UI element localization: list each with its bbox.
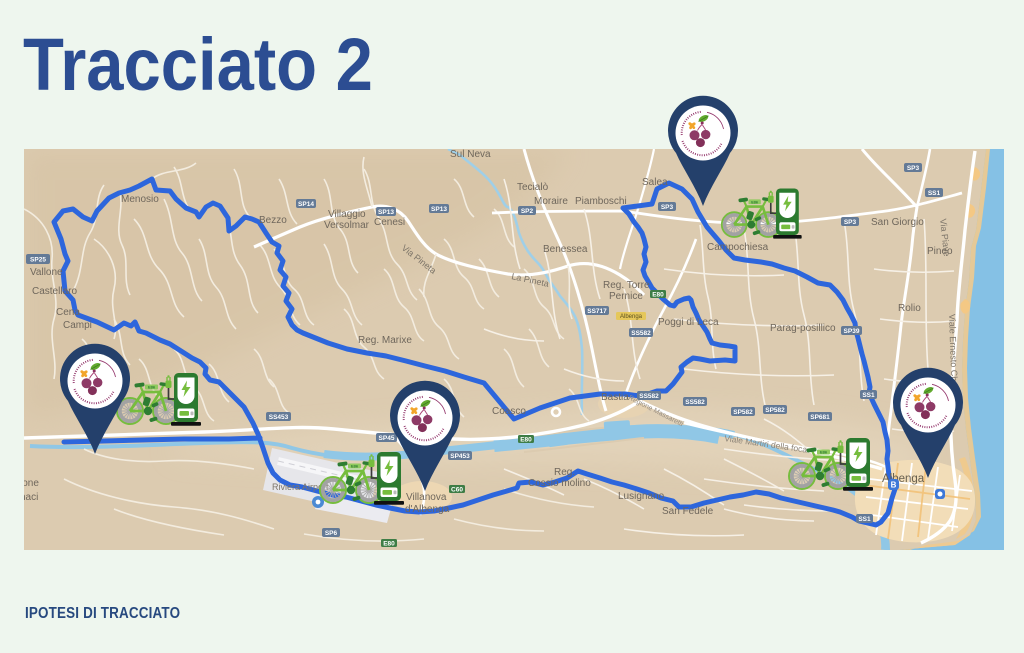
- svg-text:E80: E80: [383, 541, 395, 548]
- svg-text:SP25: SP25: [30, 257, 46, 264]
- svg-text:SS582: SS582: [685, 399, 705, 406]
- svg-text:B: B: [891, 481, 897, 490]
- svg-text:SS582: SS582: [631, 330, 651, 337]
- svg-text:C60: C60: [451, 487, 463, 494]
- svg-text:SP13: SP13: [378, 209, 394, 216]
- svg-text:Sul Neva: Sul Neva: [450, 149, 491, 160]
- svg-text:Castellaro: Castellaro: [32, 286, 77, 297]
- svg-text:SP582: SP582: [765, 407, 785, 414]
- svg-text:Coasco: Coasco: [492, 406, 526, 417]
- svg-text:Pernice: Pernice: [609, 291, 643, 302]
- svg-text:Reg. Marixe: Reg. Marixe: [358, 335, 412, 346]
- svg-text:San Giorgio: San Giorgio: [871, 217, 924, 228]
- svg-text:Benessea: Benessea: [543, 244, 588, 255]
- svg-text:Cossio molino: Cossio molino: [528, 478, 591, 489]
- svg-text:San Fedele: San Fedele: [662, 506, 714, 517]
- svg-text:SS1: SS1: [928, 190, 941, 197]
- svg-text:naci: naci: [20, 492, 38, 503]
- svg-text:Lusignano: Lusignano: [618, 491, 665, 502]
- svg-text:Villanova: Villanova: [406, 492, 447, 503]
- svg-text:SP453: SP453: [450, 453, 470, 460]
- svg-text:Vallone: Vallone: [30, 267, 63, 278]
- svg-text:SP3: SP3: [844, 219, 857, 226]
- svg-text:d'Albenga: d'Albenga: [405, 504, 450, 515]
- svg-text:Reg.: Reg.: [554, 467, 575, 478]
- svg-text:Reg. Torre: Reg. Torre: [603, 280, 650, 291]
- svg-text:E80: E80: [520, 437, 532, 444]
- svg-text:SP2: SP2: [521, 208, 534, 215]
- svg-text:Tecialò: Tecialò: [517, 182, 549, 193]
- svg-text:SP3: SP3: [661, 204, 674, 211]
- svg-text:Bastia: Bastia: [601, 392, 629, 403]
- svg-text:SP3: SP3: [907, 165, 920, 172]
- svg-text:Cena: Cena: [56, 307, 80, 318]
- svg-text:Salea: Salea: [642, 177, 668, 188]
- svg-text:SS1: SS1: [858, 516, 871, 523]
- svg-text:Bezzo: Bezzo: [259, 215, 287, 226]
- svg-text:SP582: SP582: [733, 409, 753, 416]
- svg-text:Villaggio: Villaggio: [328, 209, 366, 220]
- svg-text:SS1: SS1: [862, 392, 875, 399]
- svg-text:E80: E80: [652, 292, 664, 299]
- svg-text:SP681: SP681: [810, 414, 830, 421]
- svg-text:Moraire: Moraire: [534, 196, 568, 207]
- svg-text:Rolio: Rolio: [898, 303, 921, 314]
- svg-text:Parag-posillico: Parag-posillico: [770, 323, 836, 334]
- svg-text:Menosio: Menosio: [121, 194, 159, 205]
- svg-text:Poggi di Leca: Poggi di Leca: [658, 317, 719, 328]
- svg-text:Cenesi: Cenesi: [374, 217, 405, 228]
- svg-text:SP45: SP45: [379, 435, 395, 442]
- svg-text:Albenga: Albenga: [620, 314, 643, 320]
- svg-text:SS453: SS453: [269, 414, 289, 421]
- svg-text:SP6: SP6: [325, 530, 338, 537]
- svg-text:Campi: Campi: [63, 320, 92, 331]
- svg-text:Campochiesa: Campochiesa: [707, 242, 769, 253]
- svg-text:SP13: SP13: [431, 206, 447, 213]
- svg-text:ione: ione: [20, 478, 39, 489]
- svg-text:Piamboschi: Piamboschi: [575, 196, 627, 207]
- svg-text:SP39: SP39: [844, 328, 860, 335]
- svg-text:Versolmar: Versolmar: [324, 220, 370, 231]
- svg-text:SS582: SS582: [639, 393, 659, 400]
- svg-text:SP14: SP14: [298, 201, 314, 208]
- svg-text:SS717: SS717: [587, 308, 607, 315]
